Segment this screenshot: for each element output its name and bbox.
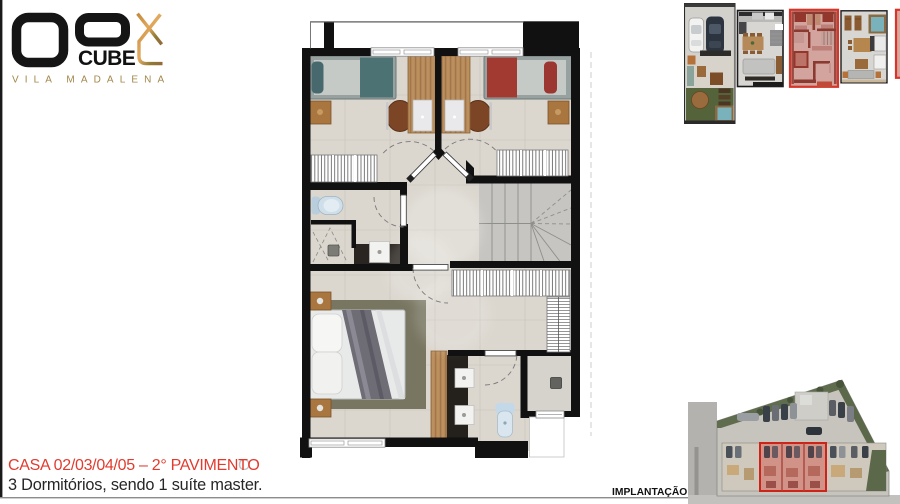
svg-text:VILA MADALENA: VILA MADALENA xyxy=(12,75,170,86)
svg-text:3 Dormitórios, sendo 1 suíte m: 3 Dormitórios, sendo 1 suíte master. xyxy=(8,476,262,494)
svg-text:CASA 02/03/04/05 – 2° PAVIMENT: CASA 02/03/04/05 – 2° PAVIMENTO xyxy=(8,457,259,474)
svg-text:CUBE: CUBE xyxy=(78,47,136,70)
svg-text:IMPLANTAÇÃO: IMPLANTAÇÃO xyxy=(612,485,687,498)
